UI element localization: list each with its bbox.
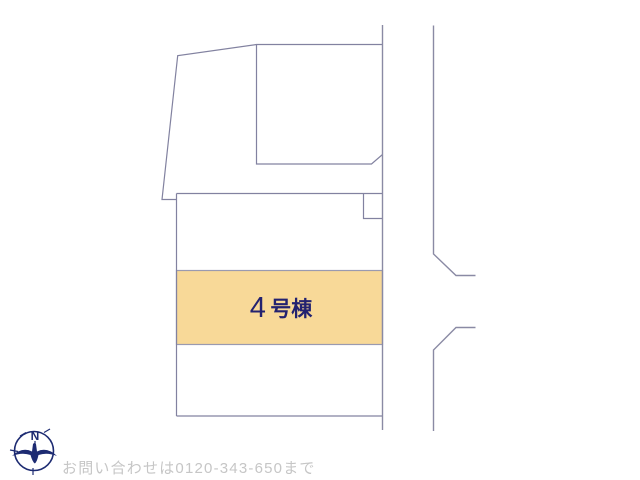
compass-tick-west [10, 450, 18, 452]
corner-parcel-outline [364, 194, 383, 219]
site-plan-canvas: 4 号棟 N お問い合わせは0120-343-650まで [0, 0, 640, 480]
north-lot-boundary [162, 45, 383, 200]
compass-tick-ne [44, 429, 50, 433]
lot-4-label-suffix: 号棟 [270, 297, 313, 321]
site-plan-page: 4 号棟 N お問い合わせは0120-343-650まで [0, 0, 640, 480]
compass-north-label: N [31, 429, 40, 443]
building-outline [257, 45, 383, 165]
road-east-edge-upper [434, 26, 476, 276]
lot-4-label-number: 4 [250, 292, 266, 324]
contact-phone-text: お問い合わせは0120-343-650まで [62, 460, 316, 477]
road-east-edge-lower [434, 328, 476, 432]
compass-icon: N [10, 429, 57, 475]
